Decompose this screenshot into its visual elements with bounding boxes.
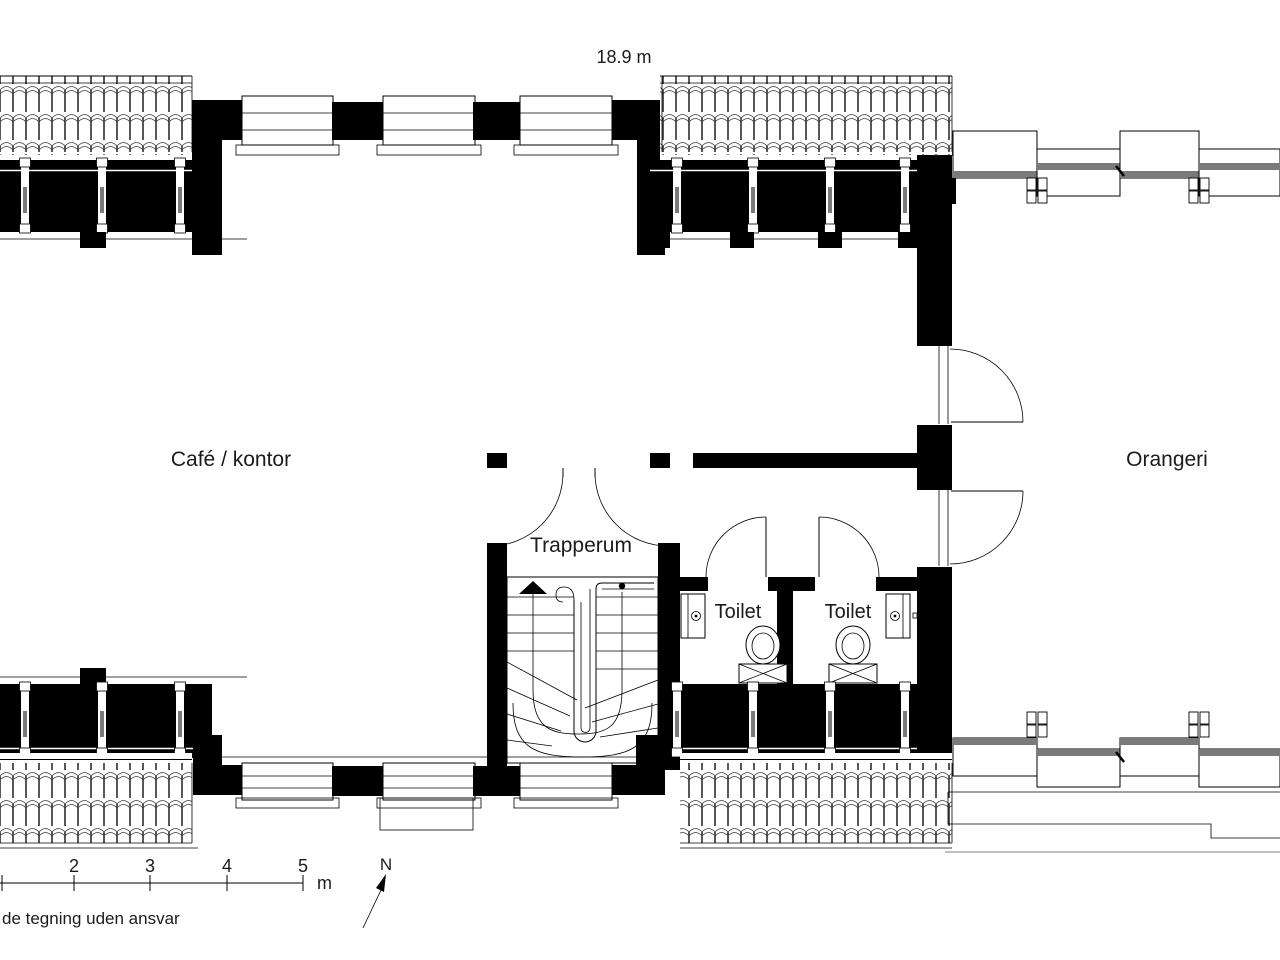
door-toilet-right xyxy=(819,517,879,577)
room-label-orangeri: Orangeri xyxy=(1126,448,1208,471)
top-middle-facade xyxy=(192,96,667,255)
walkline-start-dot xyxy=(619,583,625,589)
window-wall-top-right xyxy=(650,158,917,248)
dimension-label: 18.9 m xyxy=(596,47,651,67)
roof-tiles-top-left-icon xyxy=(0,76,192,163)
window-top-3 xyxy=(514,96,618,155)
right-wall xyxy=(917,155,1023,765)
door-toilet-left xyxy=(706,517,766,577)
wc-right xyxy=(829,626,877,683)
window-bottom-1 xyxy=(236,763,339,808)
window-top-2 xyxy=(377,96,481,155)
bottom-right-wing xyxy=(672,682,953,848)
bottom-middle-facade xyxy=(193,735,665,830)
sink-right xyxy=(886,594,917,638)
orangery-bottom-glazing xyxy=(945,712,1280,852)
door-orangery-upper xyxy=(950,349,1023,422)
room-label-toilet-right: Toilet xyxy=(825,601,872,623)
floor-plan-canvas: Trapperum xyxy=(0,0,1280,960)
entry-step xyxy=(380,798,473,830)
stairwell: Trapperum xyxy=(487,534,680,770)
scale-tick-label: 5 xyxy=(298,856,308,876)
room-label-toilet-left: Toilet xyxy=(715,601,762,623)
scale-tick-label: 3 xyxy=(145,856,155,876)
room-label-trapperum: Trapperum xyxy=(530,534,632,557)
north-arrowhead-icon xyxy=(376,874,386,892)
top-right-wing xyxy=(650,76,952,248)
scale-tick-label: 4 xyxy=(222,856,232,876)
door-orangery-lower xyxy=(950,491,1023,564)
stair xyxy=(507,577,658,763)
roof-tiles-bottom-right-icon xyxy=(680,753,952,848)
toilets: Toilet Toilet xyxy=(674,517,917,686)
north-label: N xyxy=(380,855,392,874)
roof-tiles-top-right-icon xyxy=(660,76,952,163)
orangery-top-glazing xyxy=(950,131,1280,204)
window-bottom-2 xyxy=(377,763,481,830)
floor-plan-page: Trapperum xyxy=(0,0,1280,960)
window-top-1 xyxy=(236,96,339,155)
scale-tick-label: 2 xyxy=(69,856,79,876)
scale-bar: 2 3 4 5 m xyxy=(0,856,332,893)
interior-wall xyxy=(487,453,917,546)
scale-unit-label: m xyxy=(317,873,332,893)
terrace-outline xyxy=(945,792,1280,852)
stair-up-arrow-icon xyxy=(519,581,547,594)
roof-tiles-bottom-left-icon xyxy=(0,753,198,848)
window-bottom-3 xyxy=(514,763,618,808)
glazing-bar xyxy=(953,171,1037,178)
north-arrow: N xyxy=(363,855,392,928)
disclaimer-text: de tegning uden ansvar xyxy=(2,909,180,928)
room-label-cafe-kontor: Café / kontor xyxy=(171,448,291,471)
